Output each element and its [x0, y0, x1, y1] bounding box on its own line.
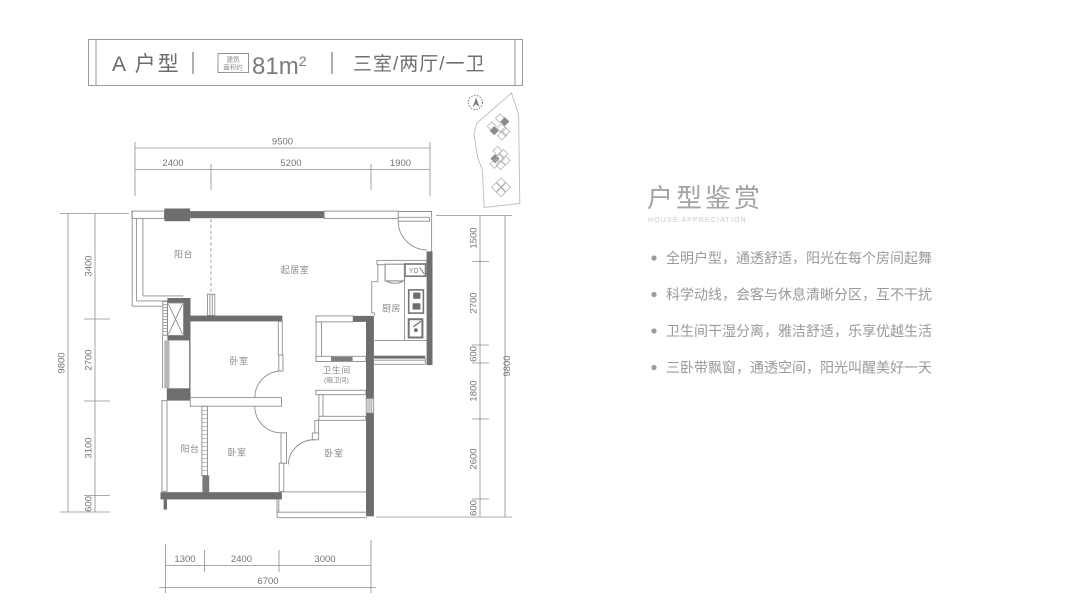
svg-text:3400: 3400: [84, 255, 95, 276]
svg-text:3100: 3100: [84, 437, 95, 458]
svg-text:户型鉴赏: 户型鉴赏: [647, 183, 763, 213]
svg-text:卫生间: 卫生间: [322, 365, 351, 376]
svg-text:(暗卫间): (暗卫间): [324, 376, 349, 385]
svg-text:阳台: 阳台: [174, 249, 193, 260]
svg-text:YD: YD: [409, 268, 419, 275]
svg-text:全明户型，通透舒适，阳光在每个房间起舞: 全明户型，通透舒适，阳光在每个房间起舞: [666, 250, 932, 266]
svg-text:厨房: 厨房: [382, 303, 401, 314]
svg-text:3000: 3000: [314, 554, 335, 565]
svg-text:卫生间干湿分离，雅洁舒适，乐享优越生活: 卫生间干湿分离，雅洁舒适，乐享优越生活: [666, 323, 932, 339]
svg-text:A 户型: A 户型: [112, 53, 181, 76]
svg-text:卧室: 卧室: [227, 447, 246, 458]
svg-text:2600: 2600: [469, 448, 480, 469]
svg-text:6700: 6700: [257, 576, 278, 587]
svg-text:2400: 2400: [162, 158, 183, 169]
svg-text:600: 600: [469, 346, 480, 362]
svg-text:阳台: 阳台: [180, 443, 199, 454]
svg-text:5200: 5200: [280, 158, 301, 169]
svg-text:三卧带飘窗，通透空间，阳光叫醒美好一天: 三卧带飘窗，通透空间，阳光叫醒美好一天: [666, 360, 932, 376]
svg-text:9800: 9800: [57, 352, 68, 373]
svg-text:81m2: 81m2: [252, 53, 307, 80]
svg-text:1300: 1300: [174, 554, 195, 565]
svg-text:9800: 9800: [502, 355, 513, 376]
svg-text:2400: 2400: [231, 554, 252, 565]
svg-text:600: 600: [469, 500, 480, 516]
svg-text:卧室: 卧室: [324, 448, 343, 459]
svg-text:2700: 2700: [469, 292, 480, 313]
svg-text:1500: 1500: [469, 227, 480, 248]
svg-text:1800: 1800: [469, 380, 480, 401]
svg-text:科学动线，会客与休息清晰分区，互不干扰: 科学动线，会客与休息清晰分区，互不干扰: [666, 287, 932, 303]
svg-text:三室/两厅/一卫: 三室/两厅/一卫: [353, 53, 486, 75]
svg-text:起居室: 起居室: [281, 264, 310, 275]
svg-text:HOUSE APPRECIATION: HOUSE APPRECIATION: [648, 217, 747, 224]
svg-text:2700: 2700: [84, 349, 95, 370]
svg-text:1900: 1900: [390, 158, 411, 169]
svg-text:面积约: 面积约: [223, 63, 243, 72]
svg-text:600: 600: [84, 496, 95, 512]
svg-text:卧室: 卧室: [229, 355, 248, 366]
svg-text:9500: 9500: [272, 137, 293, 148]
svg-text:建筑: 建筑: [227, 55, 241, 64]
